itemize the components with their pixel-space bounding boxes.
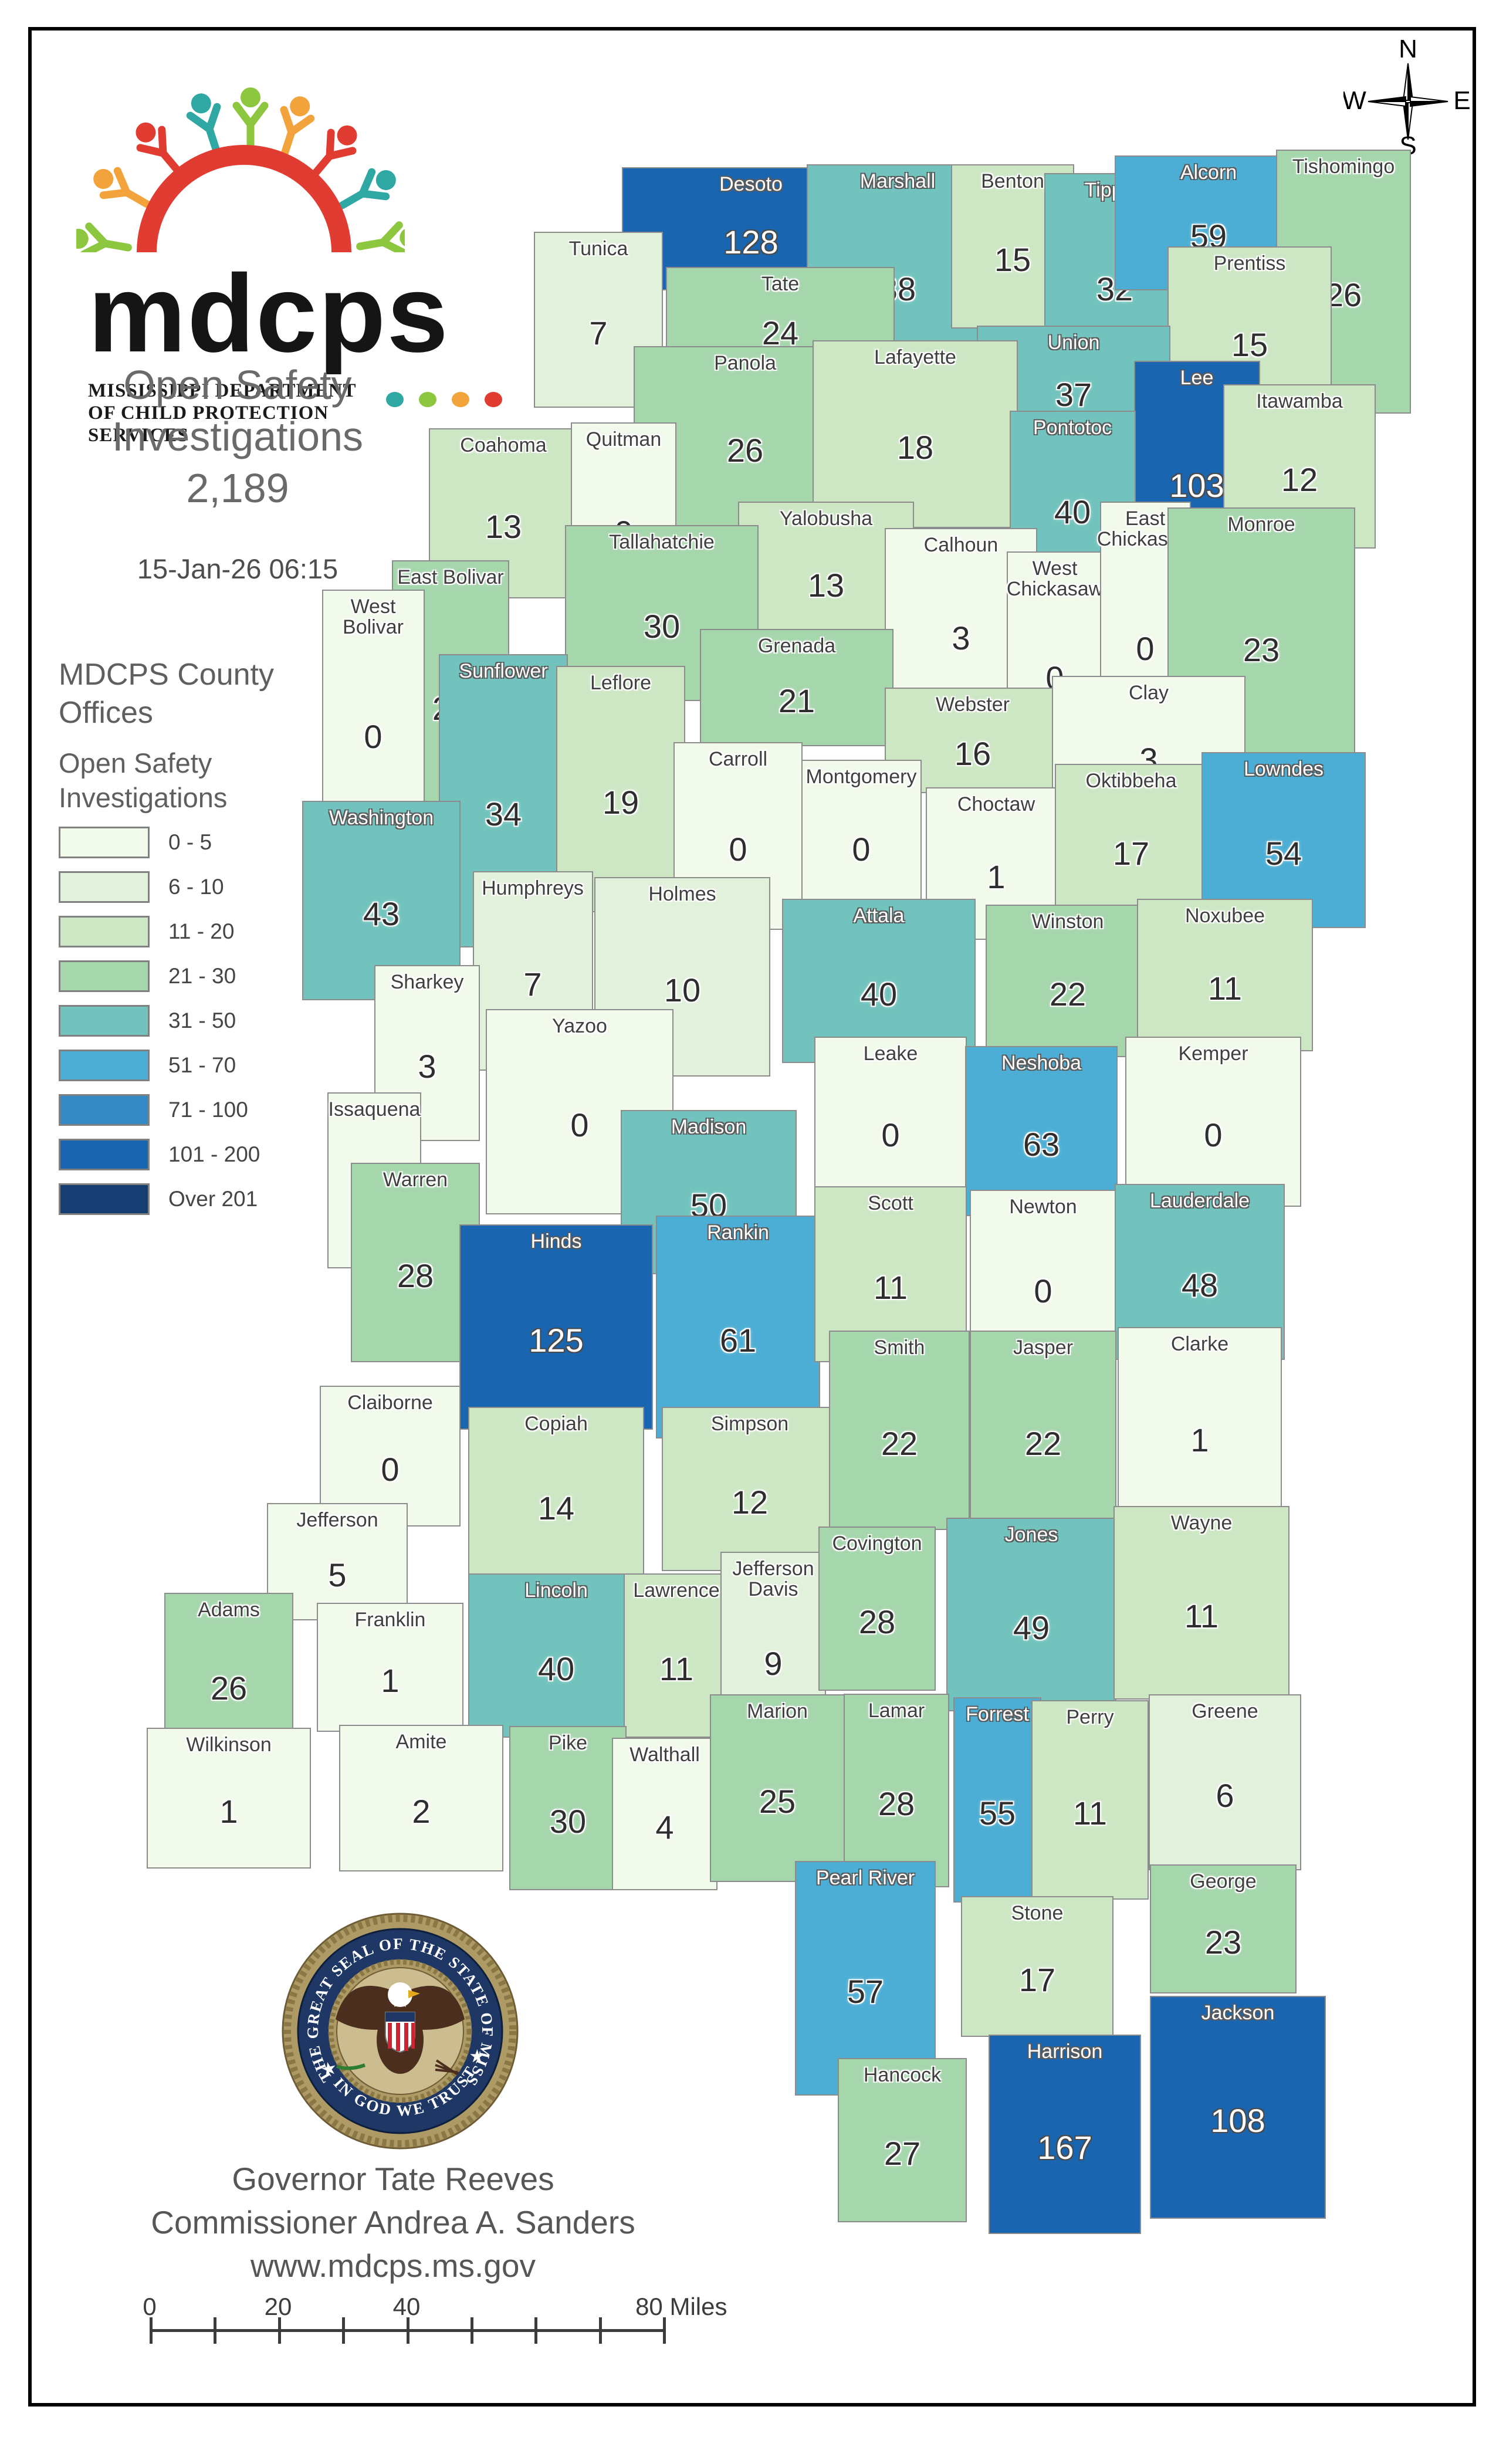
county-value: 55 bbox=[979, 1794, 1016, 1832]
county-value: 16 bbox=[955, 735, 991, 773]
county-name: Quitman bbox=[584, 429, 664, 450]
county-value: 43 bbox=[363, 895, 400, 933]
county-name: Clarke bbox=[1169, 1334, 1231, 1355]
county-value: 40 bbox=[1054, 493, 1091, 531]
county-value: 13 bbox=[808, 566, 844, 604]
county-value: 23 bbox=[1243, 631, 1280, 669]
county-value: 3 bbox=[952, 619, 970, 657]
county-name: Rankin bbox=[705, 1223, 771, 1243]
county-name: Monroe bbox=[1225, 515, 1297, 535]
county-name: Webster bbox=[933, 695, 1012, 715]
county-montgomery: Montgomery0 bbox=[801, 760, 922, 912]
county-value: 1 bbox=[219, 1792, 238, 1830]
scale-tick bbox=[278, 2317, 281, 2344]
county-value: 49 bbox=[1013, 1609, 1050, 1647]
county-pike: Pike30 bbox=[509, 1726, 627, 1890]
county-name: Forrest bbox=[963, 1704, 1031, 1725]
county-name: Lamar bbox=[866, 1701, 927, 1721]
county-name: Alcorn bbox=[1178, 163, 1239, 183]
county-name: George bbox=[1187, 1871, 1258, 1892]
county-lafayette: Lafayette18 bbox=[813, 340, 1018, 528]
county-name: Clay bbox=[1126, 683, 1171, 703]
scale-label: 40 bbox=[393, 2293, 421, 2321]
scale-label: 80 Miles bbox=[635, 2293, 727, 2321]
county-name: Pearl River bbox=[814, 1868, 917, 1888]
county-oktibbeha: Oktibbeha17 bbox=[1055, 764, 1207, 916]
commissioner-credit: Commissioner Andrea A. Sanders bbox=[111, 2204, 675, 2241]
county-name: Greene bbox=[1189, 1701, 1260, 1722]
county-jasper: Jasper22 bbox=[970, 1331, 1116, 1530]
county-value: 108 bbox=[1210, 2101, 1265, 2140]
county-name: Tallahatchie bbox=[607, 532, 717, 553]
county-covington: Covington28 bbox=[818, 1527, 936, 1691]
county-jones: Jones49 bbox=[946, 1518, 1116, 1711]
county-name: Panola bbox=[712, 353, 779, 374]
county-value: 26 bbox=[211, 1669, 247, 1707]
county-value: 128 bbox=[723, 223, 778, 261]
county-name: Warren bbox=[381, 1170, 450, 1190]
county-value: 2 bbox=[412, 1792, 430, 1830]
county-name: Calhoun bbox=[922, 535, 1001, 556]
county-value: 26 bbox=[727, 431, 763, 469]
county-simpson: Simpson12 bbox=[662, 1407, 838, 1571]
county-name: Scott bbox=[865, 1193, 915, 1214]
county-value: 3 bbox=[418, 1047, 436, 1085]
county-name: Copiah bbox=[522, 1414, 590, 1434]
county-value: 13 bbox=[485, 507, 522, 546]
county-name: Humphreys bbox=[479, 878, 586, 899]
county-value: 167 bbox=[1037, 2128, 1092, 2167]
county-franklin: Franklin1 bbox=[317, 1603, 463, 1732]
county-value: 40 bbox=[861, 975, 897, 1013]
website-url: www.mdcps.ms.gov bbox=[111, 2247, 675, 2284]
county-name: Tate bbox=[759, 274, 801, 295]
county-grenada: Grenada21 bbox=[700, 629, 893, 746]
county-harrison: Harrison167 bbox=[989, 2035, 1141, 2234]
county-value: 10 bbox=[664, 971, 700, 1009]
county-name: Madison bbox=[669, 1117, 749, 1138]
county-value: 125 bbox=[529, 1321, 583, 1359]
county-name: Choctaw bbox=[955, 794, 1037, 815]
scale-label: 20 bbox=[265, 2293, 292, 2321]
county-west-bolivar: West Bolivar0 bbox=[322, 590, 425, 836]
county-name: Leflore bbox=[588, 673, 654, 693]
mississippi-state-seal: THE GREAT SEAL OF THE STATE OF MISSISSIP… bbox=[277, 1908, 523, 2154]
county-name: Claiborne bbox=[345, 1393, 435, 1413]
county-name: Holmes bbox=[646, 884, 718, 905]
county-hinds: Hinds125 bbox=[459, 1224, 653, 1430]
county-name: Oktibbeha bbox=[1084, 771, 1179, 791]
county-name: Newton bbox=[1007, 1197, 1079, 1217]
county-name: Stone bbox=[1009, 1903, 1066, 1924]
county-name: Jefferson Davis bbox=[722, 1559, 825, 1600]
county-value: 57 bbox=[847, 1972, 884, 2011]
county-value: 9 bbox=[764, 1644, 782, 1683]
county-value: 11 bbox=[874, 1268, 908, 1307]
county-name: West Bolivar bbox=[323, 597, 424, 638]
county-value: 0 bbox=[1204, 1116, 1222, 1154]
county-value: 103 bbox=[1169, 466, 1224, 505]
county-name: Coahoma bbox=[458, 435, 549, 456]
county-value: 22 bbox=[881, 1424, 918, 1463]
county-value: 19 bbox=[603, 783, 639, 821]
county-value: 30 bbox=[644, 607, 680, 645]
county-name: Lincoln bbox=[522, 1580, 590, 1601]
county-value: 11 bbox=[659, 1650, 693, 1688]
county-name: Desoto bbox=[717, 174, 785, 195]
county-smith: Smith22 bbox=[829, 1331, 970, 1530]
county-value: 63 bbox=[1023, 1125, 1060, 1163]
county-name: Kemper bbox=[1176, 1044, 1250, 1064]
county-name: Jackson bbox=[1199, 2003, 1277, 2023]
county-kemper: Kemper0 bbox=[1125, 1037, 1301, 1207]
county-value: 7 bbox=[589, 314, 607, 352]
county-name: Union bbox=[1045, 333, 1102, 353]
county-value: 7 bbox=[523, 965, 541, 1003]
county-name: Benton bbox=[979, 171, 1047, 192]
county-value: 23 bbox=[1205, 1923, 1241, 1961]
county-leake: Leake0 bbox=[814, 1037, 967, 1207]
county-name: West Chickasaw bbox=[1004, 559, 1105, 600]
county-value: 11 bbox=[1208, 969, 1242, 1007]
county-name: Perry bbox=[1064, 1707, 1116, 1728]
county-value: 6 bbox=[1216, 1776, 1234, 1815]
county-value: 34 bbox=[485, 795, 522, 833]
county-name: Lafayette bbox=[872, 347, 959, 368]
county-value: 0 bbox=[729, 830, 747, 868]
county-name: Yazoo bbox=[550, 1016, 610, 1037]
county-marion: Marion25 bbox=[710, 1694, 845, 1882]
county-name: Simpson bbox=[709, 1414, 791, 1434]
county-value: 17 bbox=[1019, 1961, 1055, 1999]
county-wilkinson: Wilkinson1 bbox=[147, 1728, 311, 1869]
county-name: Adams bbox=[195, 1600, 262, 1620]
county-greene: Greene6 bbox=[1149, 1694, 1301, 1870]
county-name: Smith bbox=[872, 1338, 928, 1358]
county-name: Grenada bbox=[756, 636, 838, 656]
county-value: 37 bbox=[1055, 375, 1092, 414]
county-value: 0 bbox=[364, 717, 382, 756]
county-name: Lauderdale bbox=[1148, 1191, 1252, 1211]
county-name: Sharkey bbox=[388, 972, 466, 993]
county-name: Jones bbox=[1003, 1525, 1061, 1545]
county-name: Pike bbox=[546, 1733, 590, 1754]
county-name: Lawrence bbox=[631, 1580, 722, 1601]
scale-label: 0 bbox=[143, 2293, 156, 2321]
scale-tick bbox=[663, 2317, 666, 2344]
scale-bar: 0204080 Miles bbox=[150, 2293, 666, 2351]
county-layer: Desoto128Marshall38Benton15Tippah32Alcor… bbox=[0, 0, 1496, 2464]
county-name: Pontotoc bbox=[1031, 418, 1114, 438]
county-lincoln: Lincoln40 bbox=[468, 1573, 644, 1738]
county-value: 30 bbox=[550, 1802, 586, 1840]
county-value: 0 bbox=[570, 1106, 588, 1144]
county-name: East Bolivar bbox=[395, 567, 506, 588]
county-name: Issaquena bbox=[326, 1099, 423, 1120]
county-value: 28 bbox=[859, 1603, 895, 1641]
county-name: Jasper bbox=[1011, 1338, 1075, 1358]
scale-tick bbox=[599, 2317, 602, 2344]
county-value: 54 bbox=[1265, 834, 1302, 872]
scale-tick bbox=[534, 2317, 537, 2344]
county-name: Harrison bbox=[1025, 2042, 1105, 2062]
scale-tick bbox=[342, 2317, 345, 2344]
county-value: 28 bbox=[397, 1257, 434, 1295]
county-name: Sunflower bbox=[456, 661, 550, 682]
county-name: Lee bbox=[1178, 368, 1216, 388]
county-name: Washington bbox=[327, 808, 436, 828]
county-value: 12 bbox=[732, 1483, 768, 1521]
county-name: Covington bbox=[830, 1534, 924, 1554]
scale-tick bbox=[407, 2317, 409, 2344]
county-noxubee: Noxubee11 bbox=[1137, 899, 1313, 1051]
county-value: 1 bbox=[1190, 1421, 1209, 1459]
county-hancock: Hancock27 bbox=[838, 2058, 967, 2222]
county-value: 17 bbox=[1113, 834, 1149, 872]
governor-credit: Governor Tate Reeves bbox=[111, 2160, 675, 2198]
county-wayne: Wayne11 bbox=[1113, 1506, 1289, 1700]
county-value: 18 bbox=[897, 428, 933, 466]
county-name: Noxubee bbox=[1183, 906, 1267, 926]
county-value: 4 bbox=[655, 1808, 673, 1846]
county-winston: Winston22 bbox=[986, 905, 1150, 1057]
county-name: Neshoba bbox=[999, 1053, 1084, 1074]
county-value: 0 bbox=[852, 830, 870, 868]
county-name: Franklin bbox=[353, 1610, 428, 1630]
county-forrest: Forrest55 bbox=[953, 1697, 1041, 1903]
county-perry: Perry11 bbox=[1031, 1700, 1149, 1900]
county-name: Wilkinson bbox=[184, 1735, 273, 1755]
county-walthall: Walthall4 bbox=[612, 1738, 717, 1890]
county-value: 27 bbox=[884, 2134, 920, 2172]
county-name: Amite bbox=[394, 1732, 449, 1752]
county-name: Tishomingo bbox=[1290, 157, 1397, 177]
county-name: Walthall bbox=[627, 1745, 702, 1765]
county-value: 15 bbox=[994, 241, 1031, 279]
county-copiah: Copiah14 bbox=[468, 1407, 644, 1583]
county-clarke: Clarke1 bbox=[1118, 1327, 1282, 1527]
county-value: 61 bbox=[720, 1321, 756, 1359]
county-name: Winston bbox=[1030, 912, 1106, 932]
county-value: 15 bbox=[1231, 326, 1268, 364]
county-name: Carroll bbox=[706, 749, 770, 770]
county-name: Montgomery bbox=[804, 767, 919, 787]
county-value: 21 bbox=[779, 682, 815, 720]
county-jackson: Jackson108 bbox=[1150, 1996, 1326, 2219]
county-value: 14 bbox=[538, 1489, 574, 1527]
county-name: Marion bbox=[744, 1701, 810, 1722]
county-value: 11 bbox=[1073, 1794, 1107, 1832]
poster: mdcps MISSISSIPPI DEPARTMENT OF CHILD PR… bbox=[0, 0, 1496, 2464]
county-name: Jefferson bbox=[294, 1510, 380, 1531]
scale-tick bbox=[214, 2317, 216, 2344]
county-value: 22 bbox=[1025, 1424, 1061, 1463]
county-value: 40 bbox=[538, 1650, 574, 1688]
county-value: 28 bbox=[878, 1785, 915, 1823]
county-value: 0 bbox=[1034, 1272, 1052, 1310]
county-value: 5 bbox=[328, 1556, 346, 1594]
county-stone: Stone17 bbox=[961, 1896, 1113, 2037]
county-george: George23 bbox=[1150, 1864, 1297, 1993]
county-name: Lowndes bbox=[1241, 759, 1326, 780]
scale-tick bbox=[150, 2317, 153, 2344]
county-name: Marshall bbox=[858, 171, 937, 192]
county-name: Hinds bbox=[529, 1231, 584, 1252]
county-rankin: Rankin61 bbox=[656, 1216, 820, 1439]
county-value: 12 bbox=[1281, 461, 1318, 499]
county-name: Tunica bbox=[567, 239, 631, 259]
county-name: Prentiss bbox=[1211, 253, 1288, 274]
county-value: 0 bbox=[1136, 629, 1154, 668]
scale-tick bbox=[471, 2317, 473, 2344]
county-name: Attala bbox=[851, 906, 907, 926]
county-name: Hancock bbox=[861, 2065, 943, 2086]
county-value: 22 bbox=[1050, 975, 1086, 1013]
county-name: Leake bbox=[861, 1044, 920, 1064]
county-value: 11 bbox=[1184, 1597, 1219, 1635]
county-value: 1 bbox=[987, 858, 1005, 896]
county-name: Itawamba bbox=[1254, 391, 1345, 412]
county-value: 1 bbox=[381, 1661, 399, 1700]
county-name: Yalobusha bbox=[777, 509, 875, 529]
county-value: 48 bbox=[1182, 1266, 1218, 1304]
county-lamar: Lamar28 bbox=[844, 1694, 949, 1887]
county-value: 25 bbox=[759, 1782, 796, 1820]
county-name: Wayne bbox=[1169, 1513, 1235, 1534]
county-value: 0 bbox=[881, 1116, 899, 1154]
county-value: 0 bbox=[381, 1450, 399, 1488]
county-amite: Amite2 bbox=[339, 1725, 503, 1871]
